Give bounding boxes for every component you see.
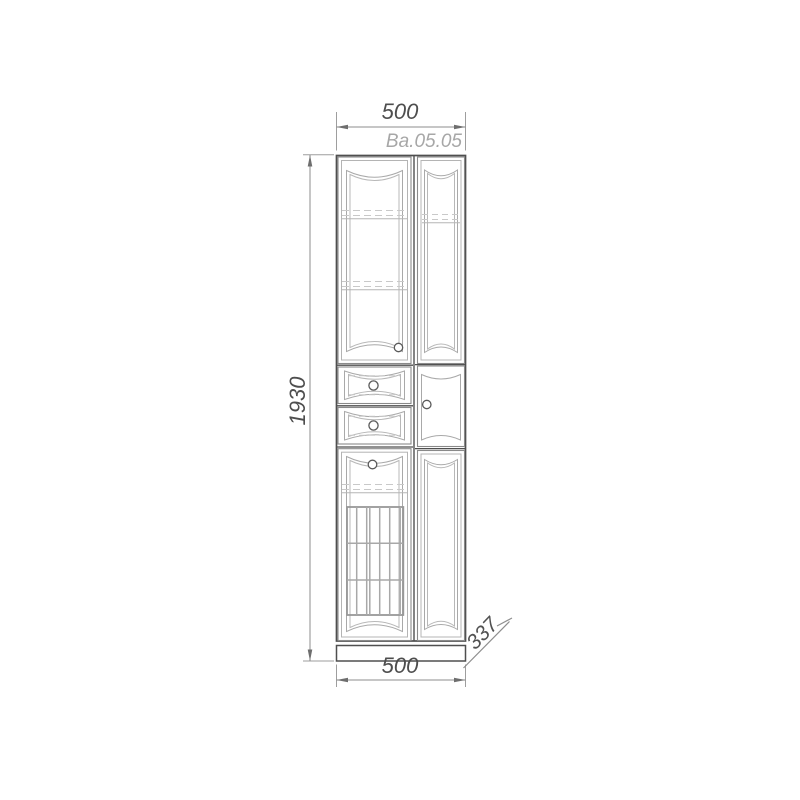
basket-wires-horizontal — [347, 543, 403, 580]
bottom-width-label: 500 — [356, 654, 444, 678]
laundry-basket — [347, 507, 403, 615]
arrow-right — [454, 678, 466, 683]
door-panel-outer — [425, 170, 458, 353]
door-panel-inner — [428, 174, 455, 350]
arrow-right — [454, 125, 466, 130]
door-panel-outer — [425, 460, 458, 630]
door-knob — [394, 343, 402, 351]
arrow-up — [308, 155, 313, 167]
door-panel-outer — [347, 171, 403, 352]
arrow-left — [337, 678, 349, 683]
arrow-down — [308, 650, 313, 662]
top-width-label: 500 — [356, 100, 444, 124]
drawer-1 — [338, 367, 411, 404]
glass-shelf-1 — [342, 211, 407, 219]
middle-right-door — [418, 366, 465, 447]
basket-wires-vertical — [357, 507, 401, 615]
lower-door-knob — [368, 460, 377, 469]
middle-right-door-knob — [423, 400, 431, 408]
arrow-left — [337, 125, 349, 130]
height-label: 1930 — [286, 351, 310, 451]
drawer-1-knob — [369, 381, 378, 390]
drawer-2-knob — [369, 421, 378, 430]
upper-right-door — [418, 157, 465, 364]
cabinet-frame — [337, 156, 466, 662]
model-code-label: Ba.05.05 — [368, 132, 462, 153]
door-panel-inner — [350, 175, 399, 348]
door-panel-inner — [428, 463, 455, 626]
drawer-2 — [338, 408, 411, 445]
glass-shelf-2 — [342, 282, 407, 290]
lower-left-door — [338, 449, 411, 641]
drawing-canvas: 500 Ba.05.05 1930 500 337 — [0, 0, 800, 800]
upper-left-door — [338, 157, 411, 364]
lower-right-door — [418, 451, 465, 641]
hidden-shelf — [342, 485, 407, 493]
